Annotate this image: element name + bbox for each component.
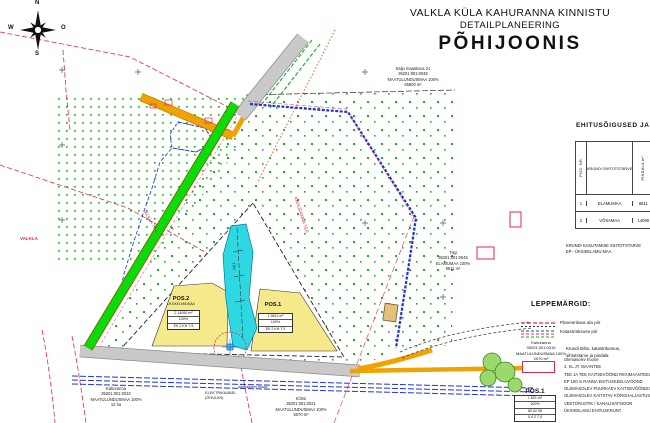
pond-label: TIIK xyxy=(231,262,237,270)
col-pindala: PINDALA m² xyxy=(641,156,645,181)
table-row: 2 VÕSAMAA 14090 xyxy=(576,211,650,228)
plot-pos1-table: 1 9811 m² 100% EK 2 KH 7,5 xyxy=(258,313,293,333)
parcel-label-kortsi: Kõrtsi 35201:001:0021 MAATULUNDUSMAA 100… xyxy=(258,396,344,417)
plot-pos2-label: POS.2 ÜKSIKELAMUMAA xyxy=(160,296,202,307)
existing-building-tan xyxy=(383,303,398,322)
building-rights-heading: EHITUSÕIGUSED JA xyxy=(576,122,650,129)
legend-note: ÜKSIKELAMU EHITUSKRUNT xyxy=(564,407,650,414)
parcel-label-kahuranna: Kahuranna 35201:001:0010 MAATULUNDUSMAA … xyxy=(78,386,154,407)
plot-pos1-label: POS.1 xyxy=(252,302,294,309)
legend-item-2-label: Katastriüksuse piir xyxy=(560,329,598,334)
compass-rose-icon xyxy=(20,10,56,50)
legend-pos-sample-title: POS.1 xyxy=(514,388,556,395)
legend-pos-sample: POS.1 1 821 m² 100% 60 02 08 0,4 2 7,5 xyxy=(514,388,556,422)
legend-pos-sample-table: 1 821 m² 100% 60 02 08 0,4 2 7,5 xyxy=(514,395,556,422)
legend-note: TEE JA TEE KAITSEVÖÖND RIIGIMAANTEEL xyxy=(564,371,650,378)
left-edge-label: VALKLA xyxy=(20,236,38,241)
legend-note: Olemasolev hoone xyxy=(564,356,650,363)
col-pos-nr: POS. NR xyxy=(579,159,583,177)
compass-south-label: S xyxy=(35,51,39,57)
parcel-label-tiigi: Tiigi 35201:001:0045 ELAMUMAA 100% 9811 … xyxy=(418,250,488,271)
project-subtitle: DETAILPLANEERING xyxy=(360,20,650,31)
legend-note: OLEMASOLEV PUURKAEV KAITSEVÖÖNDIGA xyxy=(564,385,650,392)
legend-sample-building-outline xyxy=(522,361,555,373)
project-title: VALKLA KÜLA KAHURANNA KINNISTU xyxy=(360,7,650,19)
existing-building-red-1 xyxy=(510,212,521,227)
compass-west-label: W xyxy=(8,25,14,31)
legend-heading: LEPPEMÄRGID: xyxy=(531,301,591,308)
legend-parcel-info-sample: Kahuranna 35201:001:0015 MAATULUNDUSMAA … xyxy=(512,340,570,362)
ditch-label: olemasolev kraav xyxy=(238,385,268,390)
compass-north-label: N xyxy=(35,0,39,6)
legend-sample-cadastre-boundary xyxy=(521,330,555,338)
legend-note: EP 100 m RANNA EHITUSKEELUVÖÖND xyxy=(564,378,650,385)
legend-notes-list: Olemasolev hoone 4. KL JT. MAANTEE TEE J… xyxy=(564,356,650,414)
legend-item-1-label: Planeeritava ala piir xyxy=(560,320,600,325)
legend-sample-plan-boundary xyxy=(521,321,555,329)
detail-plan-page: { "title": { "line1": "VALKLA KÜLA KAHUR… xyxy=(0,0,650,423)
plot-pos2-table: 2 14090 m² 100% EK 2 KH 7,5 xyxy=(167,310,200,330)
legend-note: 4. KL JT. MAANTEE xyxy=(564,363,650,370)
legend-note: OLEMASOLEV KAITSTAV KÕRGHALJASTUS xyxy=(564,392,650,399)
legend-note: VEETORUSTIK / KANALISATSIOON xyxy=(564,400,650,407)
compass-east-label: O xyxy=(61,25,66,31)
drawing-title-block: VALKLA KÜLA KAHURANNA KINNISTU DETAILPLA… xyxy=(360,7,650,55)
parcel-label-kalju: Kalju maaüksus 21 35201:001:0046 MAATULU… xyxy=(368,66,458,87)
cable-label: ELEKTRIKAABEL (ÕHULIIN) xyxy=(205,391,236,400)
drawing-name: PÕHIJOONIS xyxy=(360,33,650,55)
table-footnote: KRUNDI KASUTAMISE SIHTOTSTARVE EP - ÜKSI… xyxy=(566,243,650,255)
col-sihtotstarve: KRUNDI SIHTOTSTARVE xyxy=(587,166,632,171)
table-row: 1 ELAMUMAA 9811 xyxy=(576,194,650,211)
building-rights-table: POS. NR KRUNDI SIHTOTSTARVE PINDALA m² E… xyxy=(575,141,650,229)
